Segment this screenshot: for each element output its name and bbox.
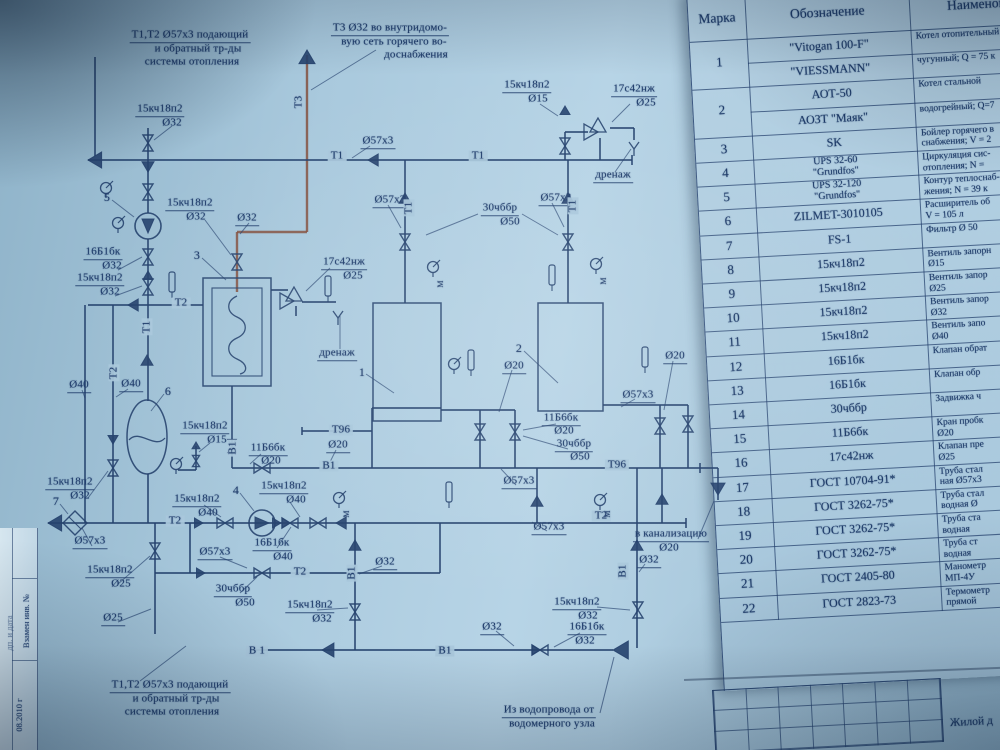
diagram-label: 30чббр (481, 202, 519, 216)
diagram-label: Т3 (294, 94, 305, 111)
diagram-label: Ø40 (286, 495, 306, 506)
diagram-label: Ø57х3 (361, 135, 396, 149)
diagram-label: 4 (233, 484, 239, 496)
diagram-label: Ø25 (111, 579, 131, 590)
diagram-label: вую сеть горячего во- (341, 37, 446, 48)
diagram-label: 16Б1бк (568, 621, 607, 635)
diagram-label: М (343, 510, 351, 517)
diagram-label: 15кч18п2 (259, 480, 308, 494)
diagram-label: Ø57х3 (532, 521, 567, 535)
diagram-label: Ø20 (659, 543, 679, 554)
diagram-label: Ø32 (637, 554, 661, 568)
diagram-label: Ø32 (162, 118, 182, 129)
diagram-label: 15кч18п2 (85, 564, 134, 578)
diagram-label: Т2 (166, 516, 185, 527)
diagram-label: доснабжения (384, 50, 448, 61)
diagram-label: 15кч18п2 (180, 420, 229, 434)
diagram-label: Т1 (328, 151, 347, 162)
diagram-label: Ø57х3 (73, 535, 108, 549)
diagram-label: Ø57х3 (502, 475, 537, 489)
diagram-label: Ø15 (528, 94, 548, 105)
diagram-labels: Т1,Т2 Ø57х3 подающийи обратный тр-дысист… (0, 0, 1000, 750)
diagram-label: М (604, 510, 612, 517)
diagram-label: Ø50 (235, 598, 255, 609)
diagram-label: Т1,Т2 Ø57х3 подающий (130, 29, 251, 43)
diagram-label: Ø20 (326, 439, 350, 453)
diagram-label: Ø32 (102, 261, 122, 272)
diagram-label: и обратный тр-ды (133, 694, 220, 705)
diagram-label: и обратный тр-ды (155, 44, 242, 55)
diagram-label: Ø57х3 (198, 546, 233, 560)
diagram-label: Ø32 (70, 491, 90, 502)
diagram-label: 16Б1бк (84, 246, 123, 260)
diagram-label: 15кч18п2 (45, 476, 94, 490)
diagram-label: Ø32 (480, 621, 504, 635)
diagram-label: Ø32 (100, 287, 120, 298)
diagram-label: 15кч18п2 (502, 79, 551, 93)
diagram-label: В1 (228, 439, 239, 456)
diagram-label: Ø25 (343, 271, 363, 282)
diagram-label: 2 (516, 342, 522, 354)
diagram-label: 16Б1бк (253, 537, 292, 551)
diagram-label: Ø57х3 (621, 389, 656, 403)
diagram-label: системы отопления (125, 707, 219, 718)
diagram-label: 17с42нж (321, 256, 367, 270)
diagram-label: дренаж (317, 347, 357, 361)
diagram-label: системы отопления (145, 57, 239, 68)
diagram-label: Ø50 (500, 217, 520, 228)
diagram-label: Т1,Т2 Ø57х3 подающий (110, 679, 231, 693)
diagram-label: В1 (319, 461, 338, 472)
diagram-label: Т3 Ø32 во внутридомо- (331, 22, 449, 36)
diagram-label: Ø32 (578, 611, 598, 622)
diagram-label: 15кч18п2 (135, 103, 184, 117)
diagram-label: М (437, 280, 445, 287)
diagram-label: 1 (359, 366, 365, 378)
diagram-label: В1 (435, 646, 454, 657)
diagram-label: дренаж (593, 169, 633, 183)
diagram-label: 15кч18п2 (172, 493, 221, 507)
diagram-label: М (600, 277, 608, 284)
diagram-label: Т96 (329, 425, 353, 436)
diagram-label: 17с42нж (611, 83, 657, 97)
diagram-label: Ø25 (636, 98, 656, 109)
diagram-label: Т1 (469, 151, 488, 162)
diagram-label: Ø50 (570, 452, 590, 463)
diagram-label: Т1 (404, 200, 415, 217)
diagram-label: 6 (165, 385, 171, 397)
diagram-label: Ø20 (663, 350, 687, 364)
diagram-label: Ø32 (186, 212, 206, 223)
diagram-label: 15кч18п2 (165, 197, 214, 211)
diagram-label: В 1 (246, 646, 268, 657)
diagram-label: 15кч18п2 (75, 272, 124, 286)
diagram-label: Из водопровода от (502, 704, 596, 718)
diagram-label: Т1 (568, 198, 579, 215)
blueprint-photo: Т1,Т2 Ø57х3 подающийи обратный тр-дысист… (0, 0, 1000, 750)
diagram-label: 7 (53, 495, 59, 507)
diagram-label: Т2 (172, 298, 191, 309)
diagram-label: Ø20 (261, 456, 281, 467)
diagram-label: Ø40 (273, 552, 293, 563)
diagram-label: 30чббр (214, 583, 252, 597)
diagram-label: Ø32 (235, 212, 259, 226)
diagram-label: Ø32 (312, 614, 332, 625)
diagram-label: 15кч18п2 (552, 596, 601, 610)
diagram-label: Ø25 (101, 612, 125, 626)
diagram-label: Т2 (109, 365, 120, 382)
diagram-label: Ø32 (373, 556, 397, 570)
diagram-label: Т96 (605, 460, 629, 471)
diagram-label: Ø40 (67, 379, 91, 393)
diagram-label: Ø40 (198, 508, 218, 519)
diagram-label: 3 (194, 249, 200, 261)
diagram-label: 5 (104, 191, 110, 203)
diagram-label: Ø40 (119, 378, 143, 392)
diagram-label: водомерного узла (509, 719, 595, 730)
diagram-label: В1 (347, 564, 358, 581)
diagram-label: Т2 (291, 567, 310, 578)
diagram-label: 15кч18п2 (285, 599, 334, 613)
diagram-label: Ø20 (502, 360, 526, 374)
diagram-label: Т1 (142, 319, 153, 336)
diagram-label: в канализацию (633, 528, 709, 542)
diagram-label: Ø32 (575, 636, 595, 647)
diagram-label: В1 (618, 562, 629, 579)
diagram-label: Ø15 (207, 435, 227, 446)
diagram-label: Ø20 (554, 426, 574, 437)
